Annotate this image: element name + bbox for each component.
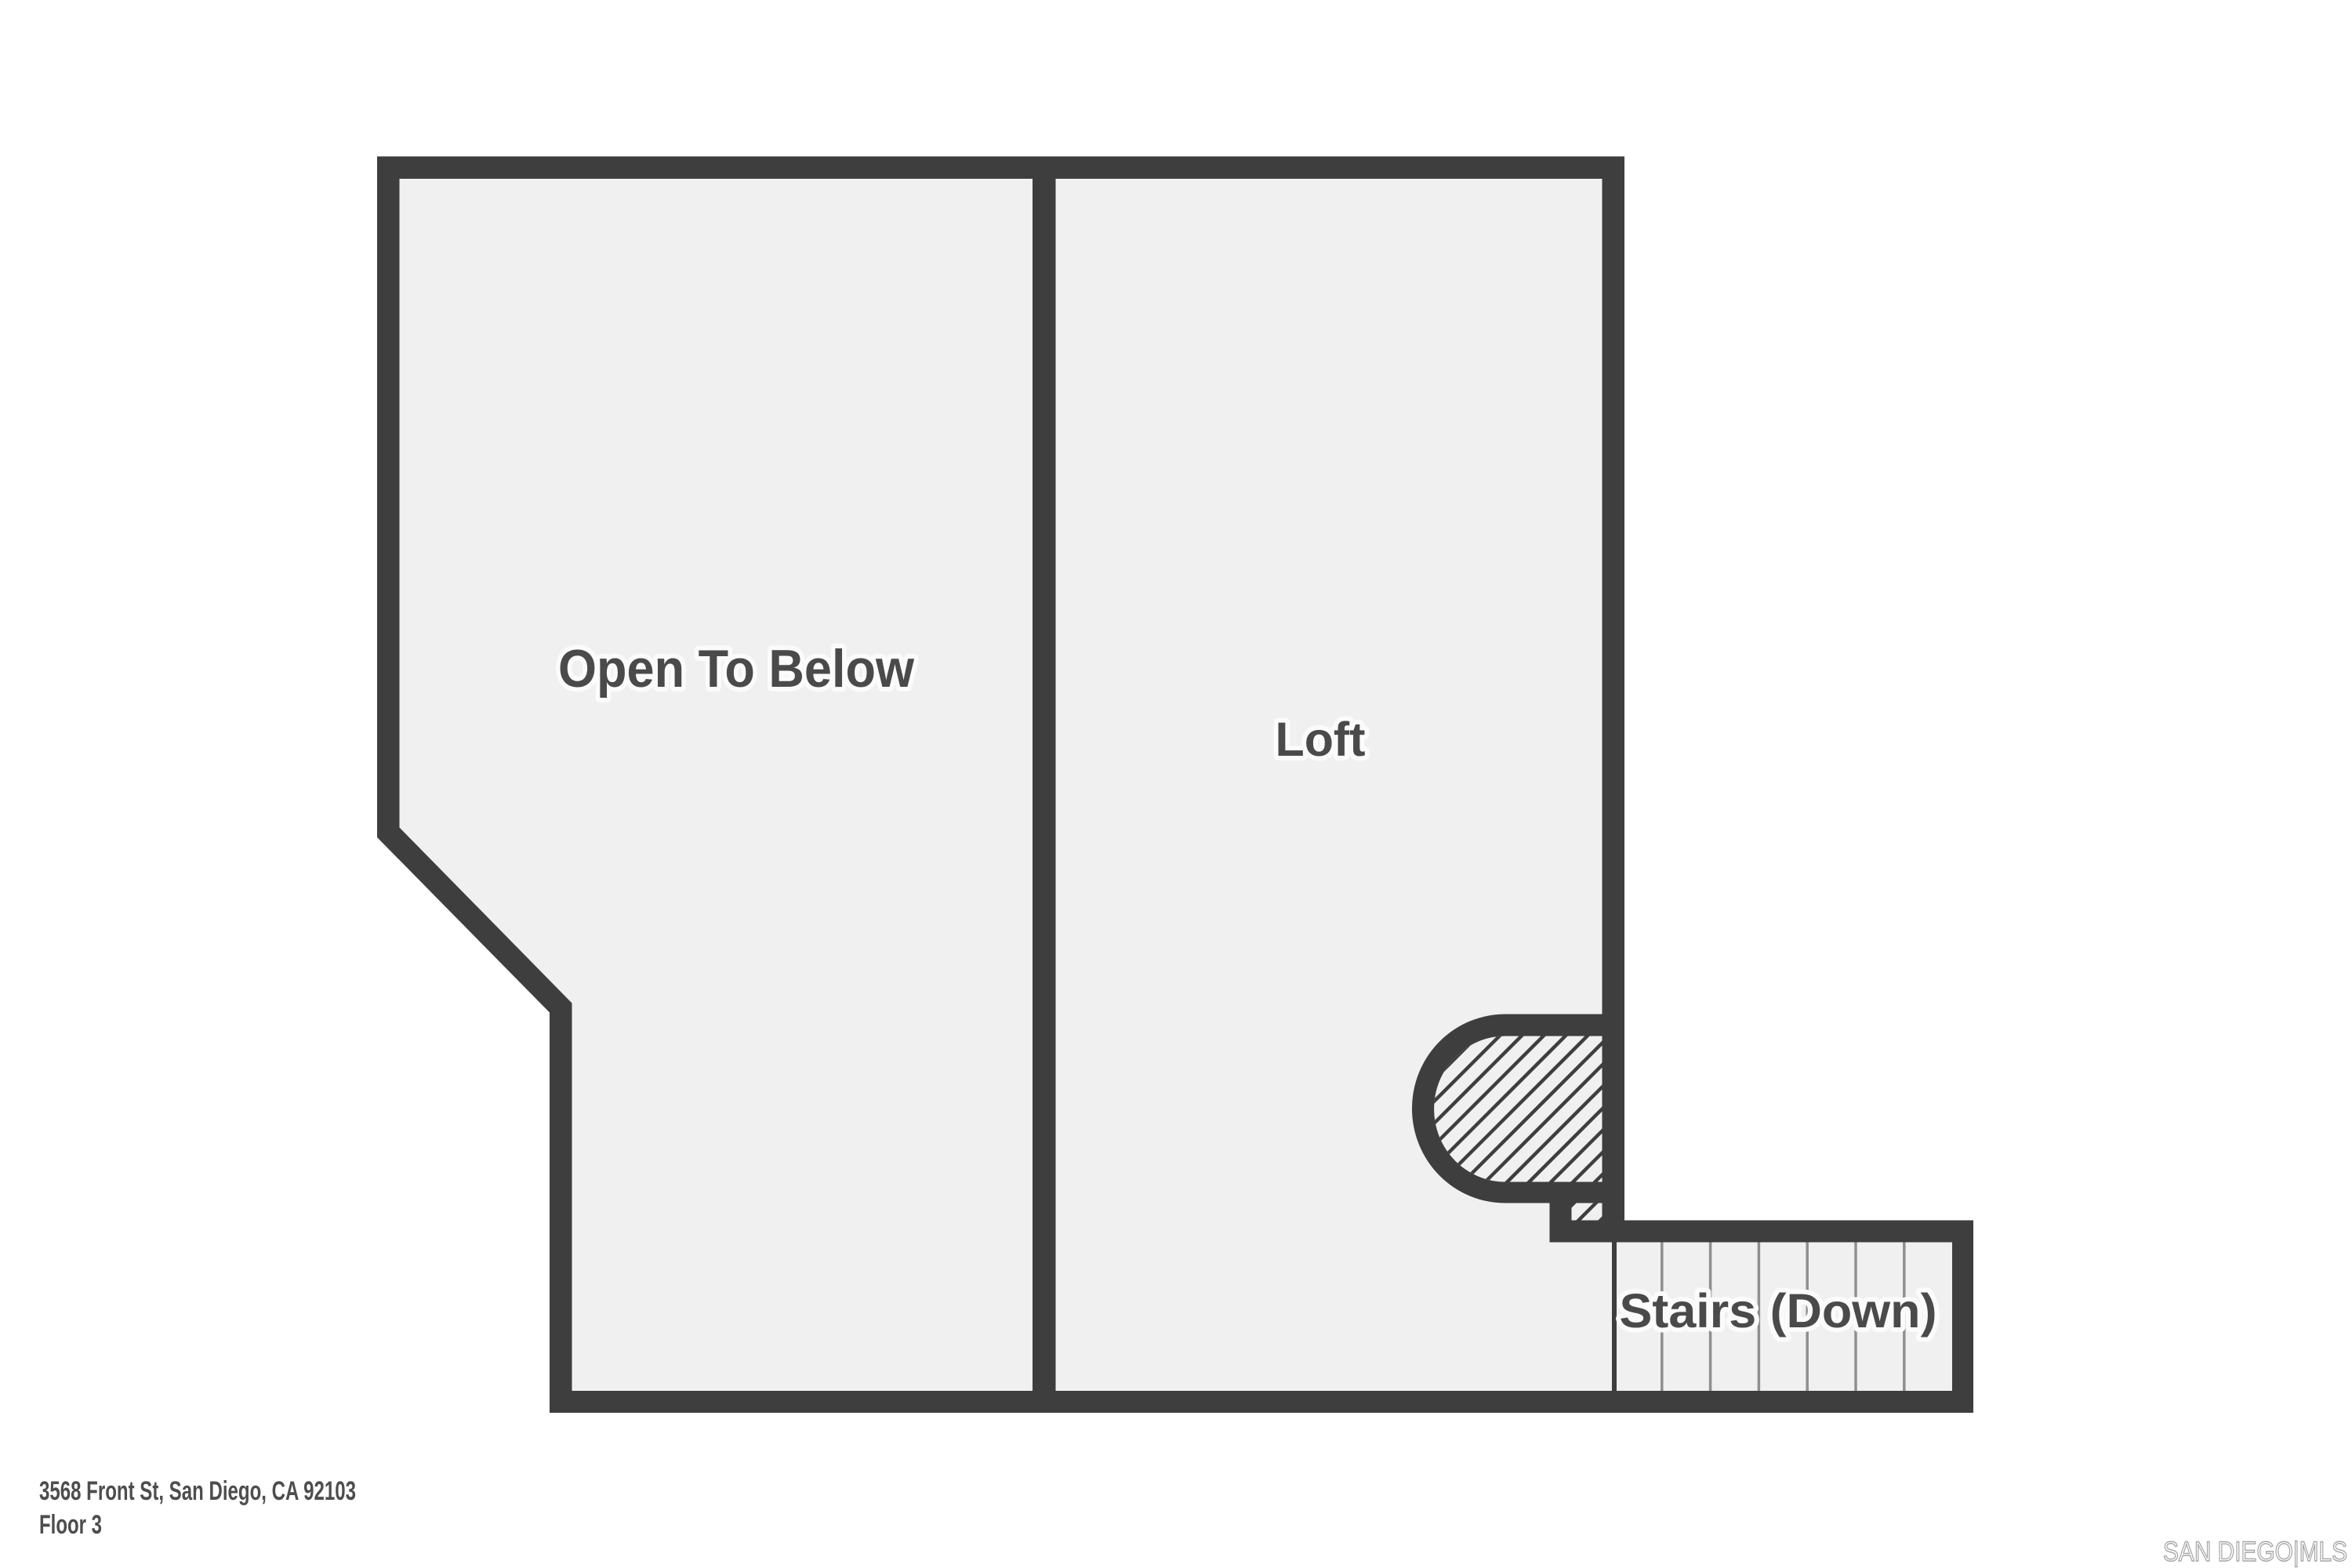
- svg-text:Stairs (Down): Stairs (Down): [1620, 1284, 1937, 1338]
- svg-text:Floor 3: Floor 3: [39, 1510, 102, 1540]
- svg-text:Loft: Loft: [1276, 713, 1366, 766]
- svg-text:Open To Below: Open To Below: [558, 639, 915, 699]
- svg-text:SAN DIEGO|MLS: SAN DIEGO|MLS: [2163, 1537, 2347, 1567]
- svg-text:3568 Front St, San Diego, CA 9: 3568 Front St, San Diego, CA 92103: [39, 1476, 356, 1506]
